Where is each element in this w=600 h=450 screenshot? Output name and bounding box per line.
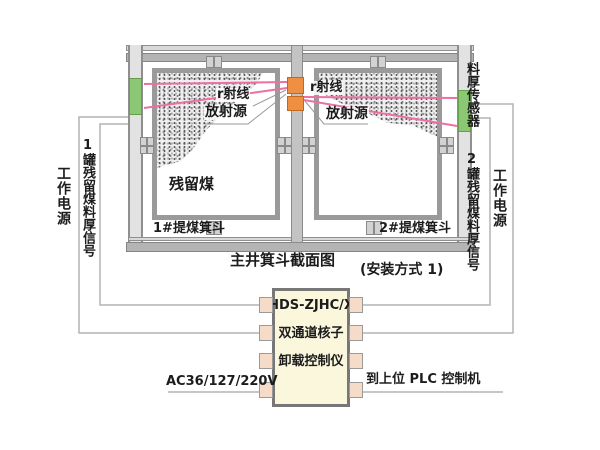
controller-name-line2: 卸载控制仪 xyxy=(278,350,343,369)
source-label-h1: 放射源 xyxy=(204,105,248,120)
right-signal-label: 2罐残留煤料厚信号 xyxy=(465,152,478,271)
controller-pin-left-2 xyxy=(259,325,273,341)
left-signal-label: 1罐残留煤料厚信号 xyxy=(81,138,94,257)
controller-box: HDS-ZJHC/X 双通道核子 卸载控制仪 xyxy=(272,288,350,407)
residual-coal-label: 残留煤 xyxy=(169,176,214,193)
hopper1-name-label: 1#提煤箕斗 xyxy=(153,222,225,236)
controller-pin-right-1 xyxy=(349,297,363,313)
gamma-beam-h1-upper xyxy=(144,82,287,84)
gamma-beam-h2-upper xyxy=(304,97,457,98)
controller-pin-right-2 xyxy=(349,325,363,341)
controller-pin-right-3 xyxy=(349,353,363,369)
ac-power-label: AC36/127/220V xyxy=(166,375,278,389)
right-sensor-label: 料厚传感器 xyxy=(465,62,478,127)
skip-cross-section-diagram: r射线 放射源 r射线 放射源 残留煤 1#提煤箕斗 2#提煤箕斗 主井箕斗截面… xyxy=(0,0,600,450)
left-power-label: 工作电源 xyxy=(56,166,70,226)
controller-name-line1: 双通道核子 xyxy=(278,322,343,341)
controller-pin-right-4 xyxy=(349,382,363,398)
controller-pin-left-3 xyxy=(259,353,273,369)
hopper2-name-label: 2#提煤箕斗 xyxy=(379,222,451,236)
ray-label-h1: r射线 xyxy=(216,88,250,102)
right-power-label: 工作电源 xyxy=(492,168,506,228)
controller-model: HDS-ZJHC/X xyxy=(268,298,354,313)
diagram-caption: 主井箕斗截面图 xyxy=(230,252,335,269)
source-label-h2: 放射源 xyxy=(325,107,369,122)
controller-pin-left-1 xyxy=(259,297,273,313)
plc-label: 到上位 PLC 控制机 xyxy=(366,373,480,387)
ray-label-h2: r射线 xyxy=(309,81,343,95)
installation-caption: (安装方式 1) xyxy=(360,263,443,278)
wire-left-signal xyxy=(100,124,260,305)
